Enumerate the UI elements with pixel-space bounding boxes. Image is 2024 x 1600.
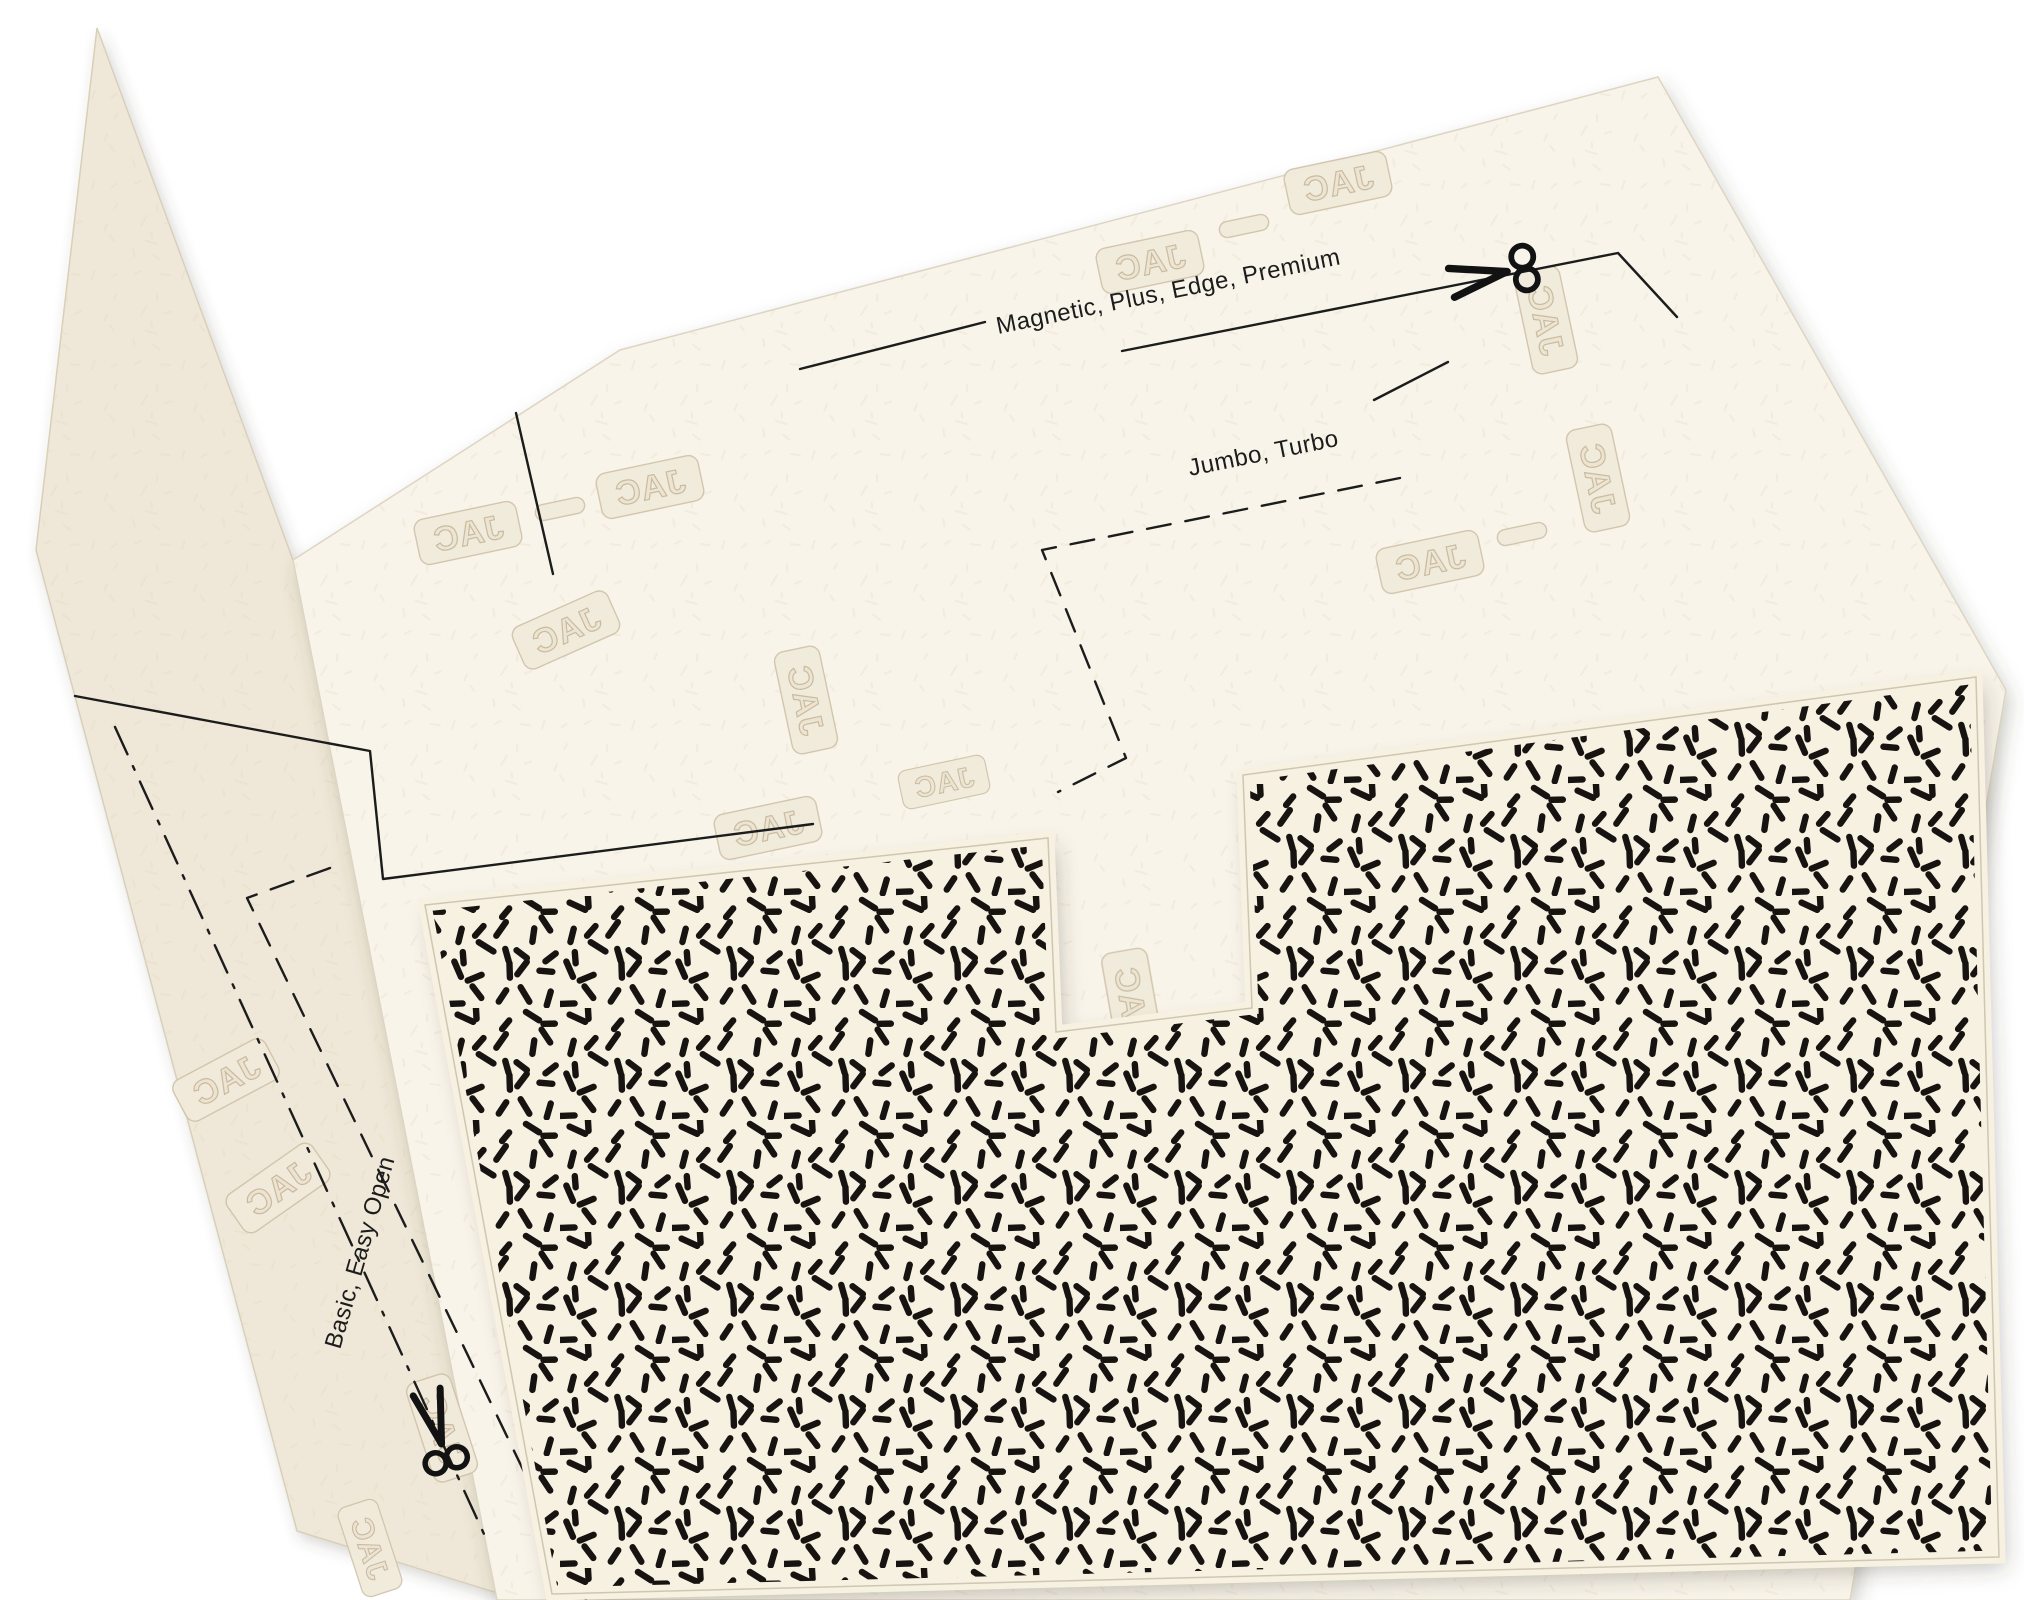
paper-template-photo: JACJACJACJACJACJACJACJACJACJACJACJACJACJ… xyxy=(0,0,2024,1600)
photo-canvas: JACJACJACJACJACJACJACJACJACJACJACJACJACJ… xyxy=(0,0,2024,1600)
